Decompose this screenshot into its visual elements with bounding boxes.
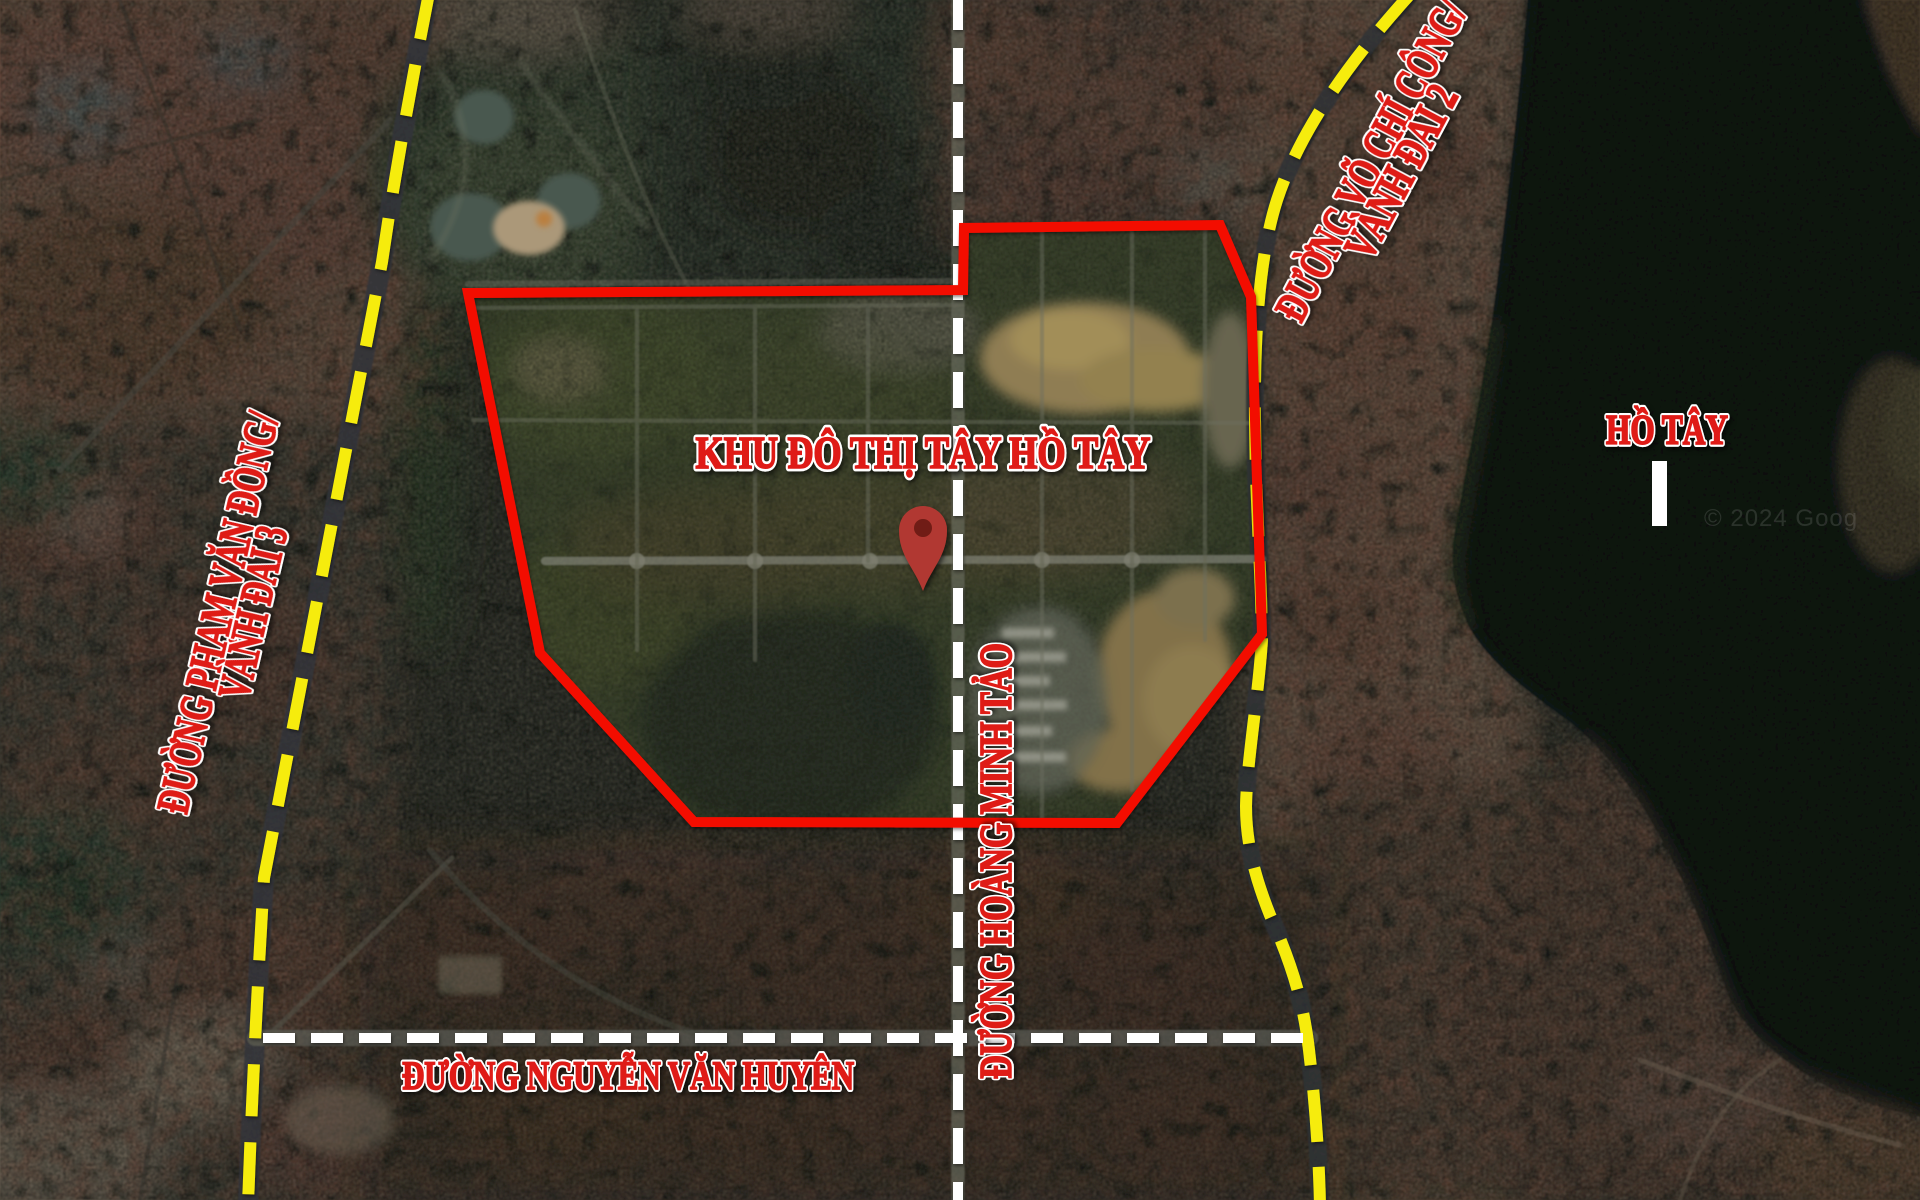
svg-text:KHU ĐÔ THỊ TÂY HỒ TÂY: KHU ĐÔ THỊ TÂY HỒ TÂY: [696, 426, 1151, 478]
svg-text:HỒ TÂY: HỒ TÂY: [1606, 406, 1728, 454]
svg-text:ĐƯỜNG NGUYỄN VĂN HUYÊN: ĐƯỜNG NGUYỄN VĂN HUYÊN: [402, 1052, 854, 1098]
svg-text:ĐƯỜNG HOÀNG MINH TẢO: ĐƯỜNG HOÀNG MINH TẢO: [970, 643, 1021, 1079]
svg-text:© 2024 Goog: © 2024 Goog: [1704, 505, 1858, 532]
